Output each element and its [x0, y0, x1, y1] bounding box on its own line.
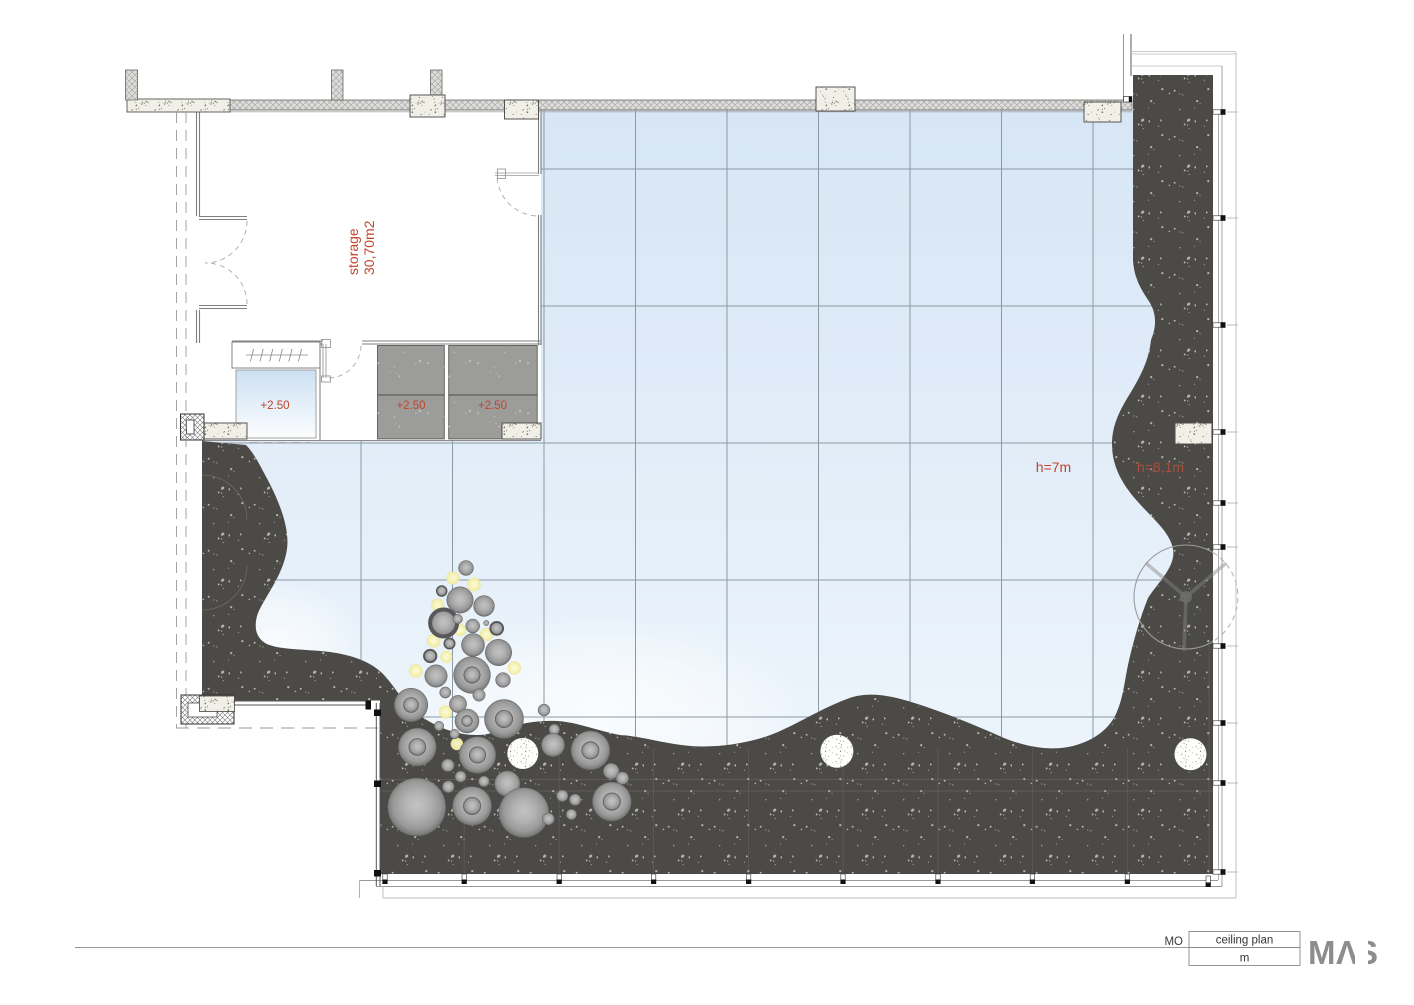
- svg-text:+2.50: +2.50: [396, 400, 425, 412]
- svg-text:+2.50: +2.50: [478, 400, 507, 412]
- svg-text:ceiling plan: ceiling plan: [1216, 935, 1274, 947]
- svg-text:30,70m2: 30,70m2: [361, 220, 377, 275]
- svg-text:h=8,1m: h=8,1m: [1137, 459, 1184, 475]
- svg-text:Λ: Λ: [1336, 934, 1358, 971]
- svg-text:m: m: [1240, 953, 1250, 965]
- svg-text:MO: MO: [1164, 936, 1183, 948]
- svg-text:h=7m: h=7m: [1036, 459, 1071, 475]
- svg-text:M: M: [1308, 934, 1336, 971]
- svg-text:storage: storage: [345, 228, 361, 275]
- svg-text:+2.50: +2.50: [260, 400, 289, 412]
